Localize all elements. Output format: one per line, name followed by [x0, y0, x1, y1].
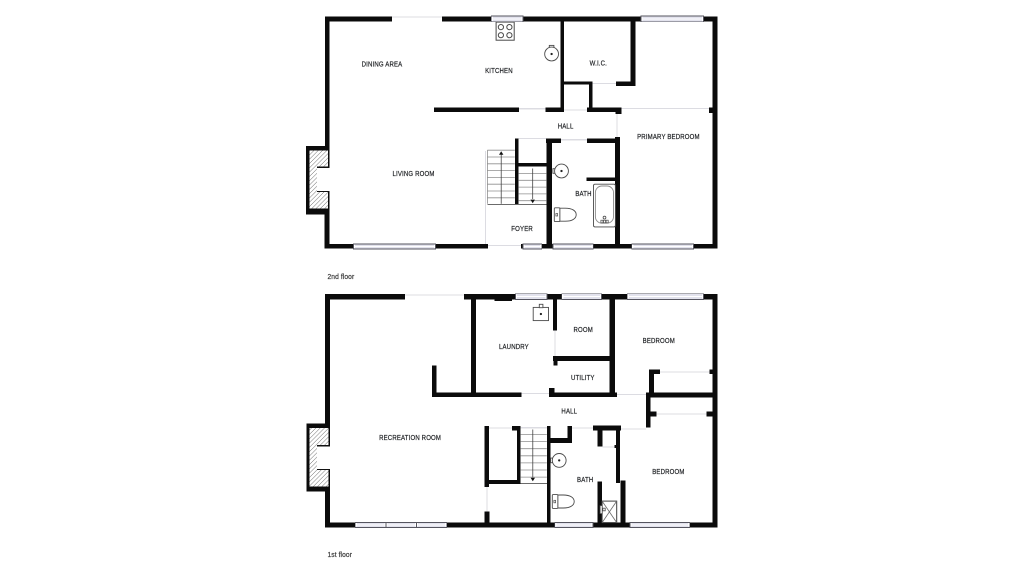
- svg-text:BATH: BATH: [575, 191, 591, 199]
- svg-text:1st floor: 1st floor: [328, 551, 353, 559]
- svg-text:BEDROOM: BEDROOM: [652, 469, 684, 477]
- svg-text:W.I.C.: W.I.C.: [590, 60, 607, 68]
- svg-text:HALL: HALL: [561, 408, 577, 416]
- svg-text:ROOM: ROOM: [573, 327, 592, 335]
- svg-text:KITCHEN: KITCHEN: [485, 67, 513, 75]
- svg-text:BEDROOM: BEDROOM: [643, 337, 675, 345]
- svg-text:FOYER: FOYER: [511, 225, 533, 233]
- svg-text:PRIMARY BEDROOM: PRIMARY BEDROOM: [637, 134, 700, 142]
- svg-text:BATH: BATH: [577, 477, 593, 485]
- svg-text:RECREATION ROOM: RECREATION ROOM: [379, 435, 441, 443]
- svg-text:HALL: HALL: [558, 123, 574, 131]
- svg-text:DINING AREA: DINING AREA: [362, 61, 403, 69]
- svg-text:UTILITY: UTILITY: [571, 375, 595, 383]
- svg-text:2nd floor: 2nd floor: [328, 273, 355, 281]
- svg-text:LAUNDRY: LAUNDRY: [499, 344, 529, 352]
- svg-text:LIVING ROOM: LIVING ROOM: [392, 170, 434, 178]
